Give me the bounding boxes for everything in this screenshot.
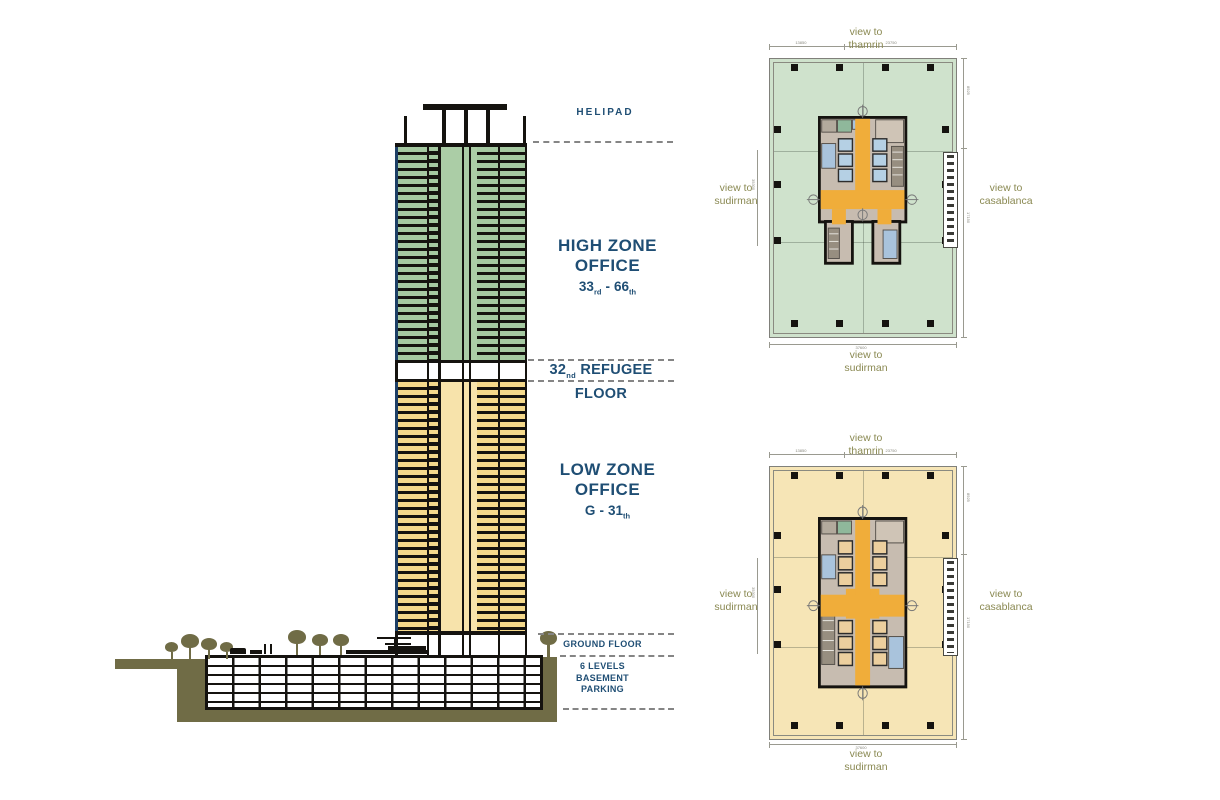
ground-wall-left bbox=[177, 659, 205, 710]
plan-column bbox=[836, 722, 843, 729]
ground-bar-left bbox=[115, 659, 179, 669]
tree-canopy bbox=[165, 642, 178, 652]
tower-refugee-floor bbox=[395, 360, 527, 382]
dimension-line-right: 8925 17150 bbox=[963, 58, 964, 338]
podium-slab bbox=[346, 650, 428, 654]
service-riser bbox=[943, 558, 958, 656]
dim-tick bbox=[961, 739, 967, 740]
view-prefix: view to bbox=[698, 588, 774, 601]
view-name: sudirman bbox=[698, 195, 774, 208]
leader-helipad bbox=[533, 141, 673, 143]
high-zone-line2: OFFICE bbox=[535, 256, 680, 276]
tower-col-stripe bbox=[398, 147, 427, 360]
car bbox=[250, 650, 262, 654]
plan-column bbox=[942, 126, 949, 133]
roof-parapet-post bbox=[404, 116, 407, 144]
refugee-ordinal: nd bbox=[566, 371, 576, 380]
dim-tick bbox=[956, 342, 957, 348]
refugee-floor-label: 32nd REFUGEE FLOOR bbox=[528, 361, 674, 403]
tree-trunk bbox=[171, 652, 173, 659]
riser-hatch bbox=[947, 155, 954, 245]
plan-column bbox=[774, 126, 781, 133]
low-zone-line1: LOW ZONE bbox=[535, 460, 680, 480]
floor-plan-low-zone bbox=[769, 466, 957, 740]
tree bbox=[181, 634, 199, 659]
view-label-sudirman-left: view to sudirman bbox=[698, 588, 774, 614]
view-prefix: view to bbox=[698, 182, 774, 195]
range-to-ordinal: th bbox=[629, 288, 636, 297]
plan-column bbox=[791, 472, 798, 479]
helipad-label: HELIPAD bbox=[540, 107, 670, 118]
plan-column bbox=[774, 237, 781, 244]
view-prefix: view to bbox=[966, 588, 1046, 601]
plan-column bbox=[882, 472, 889, 479]
tree bbox=[288, 630, 306, 655]
plan-column bbox=[927, 320, 934, 327]
plan-column bbox=[882, 722, 889, 729]
basement-line3: PARKING bbox=[545, 684, 660, 696]
plan-column bbox=[774, 641, 781, 648]
tower-col-stripe bbox=[477, 635, 498, 655]
tower-col-stripe bbox=[477, 147, 498, 360]
range-from: G bbox=[585, 503, 596, 518]
dim-value: 8925 bbox=[966, 493, 970, 502]
tree-trunk bbox=[226, 652, 228, 659]
refugee-number: 32 bbox=[549, 362, 566, 378]
tree-trunk bbox=[340, 646, 342, 655]
tower-col-solid bbox=[441, 635, 462, 655]
helipad-post bbox=[486, 110, 490, 144]
dim-tick bbox=[956, 452, 957, 458]
view-prefix: view to bbox=[806, 349, 926, 362]
tower-col-blk bbox=[525, 147, 527, 360]
view-label-sudirman-bottom: view to sudirman bbox=[806, 748, 926, 774]
tree-trunk bbox=[208, 650, 210, 659]
low-zone-floor-range: G-31th bbox=[535, 503, 680, 521]
basement-label: 6 LEVELS BASEMENT PARKING bbox=[545, 661, 660, 696]
tree-trunk bbox=[319, 646, 321, 655]
range-to: 66 bbox=[614, 279, 629, 294]
roof-parapet-post bbox=[523, 116, 526, 144]
range-dash: - bbox=[605, 279, 610, 294]
architectural-diagram: HELIPAD HIGH ZONE OFFICE 33rd-66th 32nd … bbox=[0, 0, 1220, 800]
helipad-post bbox=[442, 110, 446, 144]
view-label-casablanca: view to casablanca bbox=[966, 588, 1046, 614]
tower-col-stripe bbox=[500, 363, 525, 379]
plan-column bbox=[927, 472, 934, 479]
dim-tick bbox=[961, 148, 967, 149]
range-from: 33 bbox=[579, 279, 594, 294]
low-zone-line2: OFFICE bbox=[535, 480, 680, 500]
view-label-thamrin: view to thamrin bbox=[806, 26, 926, 52]
floor-plan-high-zone bbox=[769, 58, 957, 338]
view-name: casablanca bbox=[966, 195, 1046, 208]
plan-column bbox=[882, 320, 889, 327]
tree-canopy bbox=[288, 630, 306, 644]
tree bbox=[165, 642, 178, 659]
view-name: sudirman bbox=[806, 362, 926, 375]
view-prefix: view to bbox=[806, 432, 926, 445]
tower-col-narrow bbox=[429, 382, 438, 631]
tower-col-blk bbox=[525, 635, 527, 655]
dimension-line-bottom: 37600 bbox=[769, 744, 957, 745]
tower-col-narrow bbox=[429, 635, 438, 655]
plan-column bbox=[927, 64, 934, 71]
range-to: 31 bbox=[608, 503, 623, 518]
basement-parking-grid bbox=[205, 655, 543, 710]
dim-tick bbox=[769, 742, 770, 748]
tower-col-blk bbox=[525, 382, 527, 631]
ground-slab-bottom bbox=[177, 708, 557, 722]
dim-tick bbox=[956, 742, 957, 748]
plan-column bbox=[791, 722, 798, 729]
post bbox=[264, 644, 266, 654]
tree-canopy bbox=[312, 634, 328, 646]
view-prefix: view to bbox=[806, 26, 926, 39]
dim-tick bbox=[961, 337, 967, 338]
high-zone-label: HIGH ZONE OFFICE 33rd-66th bbox=[535, 236, 680, 297]
dimension-line-right: 8925 17150 bbox=[963, 466, 964, 740]
dim-value: 13850 bbox=[795, 41, 806, 45]
tower-col-narrow bbox=[429, 363, 438, 379]
dimension-line-bottom: 37600 bbox=[769, 344, 957, 345]
range-from-ordinal: rd bbox=[594, 288, 602, 297]
high-zone-line1: HIGH ZONE bbox=[535, 236, 680, 256]
plan-column bbox=[927, 722, 934, 729]
range-to-ordinal: th bbox=[623, 512, 630, 521]
tower-high-zone bbox=[395, 143, 527, 360]
dim-tick bbox=[956, 44, 957, 50]
dim-tick bbox=[769, 452, 770, 458]
tree-trunk bbox=[296, 644, 298, 655]
dim-tick bbox=[961, 554, 967, 555]
dim-tick bbox=[961, 58, 967, 59]
tower-col-stripe bbox=[477, 363, 498, 379]
post bbox=[270, 644, 272, 654]
basement-line1: 6 LEVELS bbox=[545, 661, 660, 673]
tower-col-blk bbox=[525, 363, 527, 379]
dim-tick bbox=[769, 44, 770, 50]
view-label-sudirman-left: view to sudirman bbox=[698, 182, 774, 208]
tower-col-stripe bbox=[500, 147, 525, 360]
low-zone-core-plan bbox=[818, 517, 907, 688]
car bbox=[230, 648, 246, 654]
low-zone-label: LOW ZONE OFFICE G-31th bbox=[535, 460, 680, 521]
view-name: casablanca bbox=[966, 601, 1046, 614]
tower-col-stripe bbox=[398, 363, 427, 379]
tree-canopy bbox=[181, 634, 199, 648]
view-label-thamrin: view to thamrin bbox=[806, 432, 926, 458]
high-zone-core-plan bbox=[818, 116, 907, 266]
tree bbox=[312, 634, 328, 655]
tower-col-solid bbox=[441, 382, 462, 631]
plan-column bbox=[836, 320, 843, 327]
leader-ground-top bbox=[538, 633, 674, 635]
dim-value: 17150 bbox=[966, 617, 970, 628]
view-name: thamrin bbox=[806, 39, 926, 52]
view-prefix: view to bbox=[966, 182, 1046, 195]
entry-canopy bbox=[385, 643, 411, 645]
tree-canopy bbox=[333, 634, 349, 646]
tower-col-stripe bbox=[477, 382, 498, 631]
basement-line2: BASEMENT bbox=[545, 673, 660, 685]
leader-basement-bottom bbox=[563, 708, 674, 710]
dim-value: 13850 bbox=[795, 449, 806, 453]
plan-column bbox=[791, 64, 798, 71]
tower-col-stripe bbox=[398, 382, 427, 631]
tree-trunk bbox=[189, 648, 191, 659]
view-name: sudirman bbox=[698, 601, 774, 614]
dim-tick bbox=[769, 342, 770, 348]
plan-column bbox=[774, 586, 781, 593]
refugee-text: REFUGEE FLOOR bbox=[575, 362, 653, 402]
tower-col-stripe bbox=[500, 635, 525, 655]
plan-column bbox=[882, 64, 889, 71]
view-prefix: view to bbox=[806, 748, 926, 761]
view-name: thamrin bbox=[806, 445, 926, 458]
ground-floor-label: GROUND FLOOR bbox=[540, 639, 665, 649]
dim-value: 8925 bbox=[966, 86, 970, 95]
view-label-sudirman-bottom: view to sudirman bbox=[806, 349, 926, 375]
tower-col-solid bbox=[441, 363, 462, 379]
tower-col-solid bbox=[441, 147, 462, 360]
view-name: sudirman bbox=[806, 761, 926, 774]
riser-hatch bbox=[947, 561, 954, 653]
range-dash: - bbox=[599, 503, 604, 518]
tree-canopy bbox=[201, 638, 217, 650]
plan-column bbox=[774, 532, 781, 539]
plan-column bbox=[836, 64, 843, 71]
tower-col-narrow bbox=[429, 147, 438, 360]
plan-column bbox=[836, 472, 843, 479]
tree bbox=[201, 638, 217, 659]
plan-column bbox=[942, 532, 949, 539]
plan-column bbox=[774, 181, 781, 188]
service-riser bbox=[943, 152, 958, 248]
view-label-casablanca: view to casablanca bbox=[966, 182, 1046, 208]
dim-tick bbox=[961, 466, 967, 467]
high-zone-floor-range: 33rd-66th bbox=[535, 279, 680, 297]
tower-col-stripe bbox=[500, 382, 525, 631]
canopy-support bbox=[394, 637, 396, 654]
leader-ground-bottom bbox=[560, 655, 674, 657]
tower-low-zone bbox=[395, 382, 527, 635]
dim-value: 17150 bbox=[966, 212, 970, 223]
plan-column bbox=[791, 320, 798, 327]
helipad-post bbox=[464, 110, 468, 144]
